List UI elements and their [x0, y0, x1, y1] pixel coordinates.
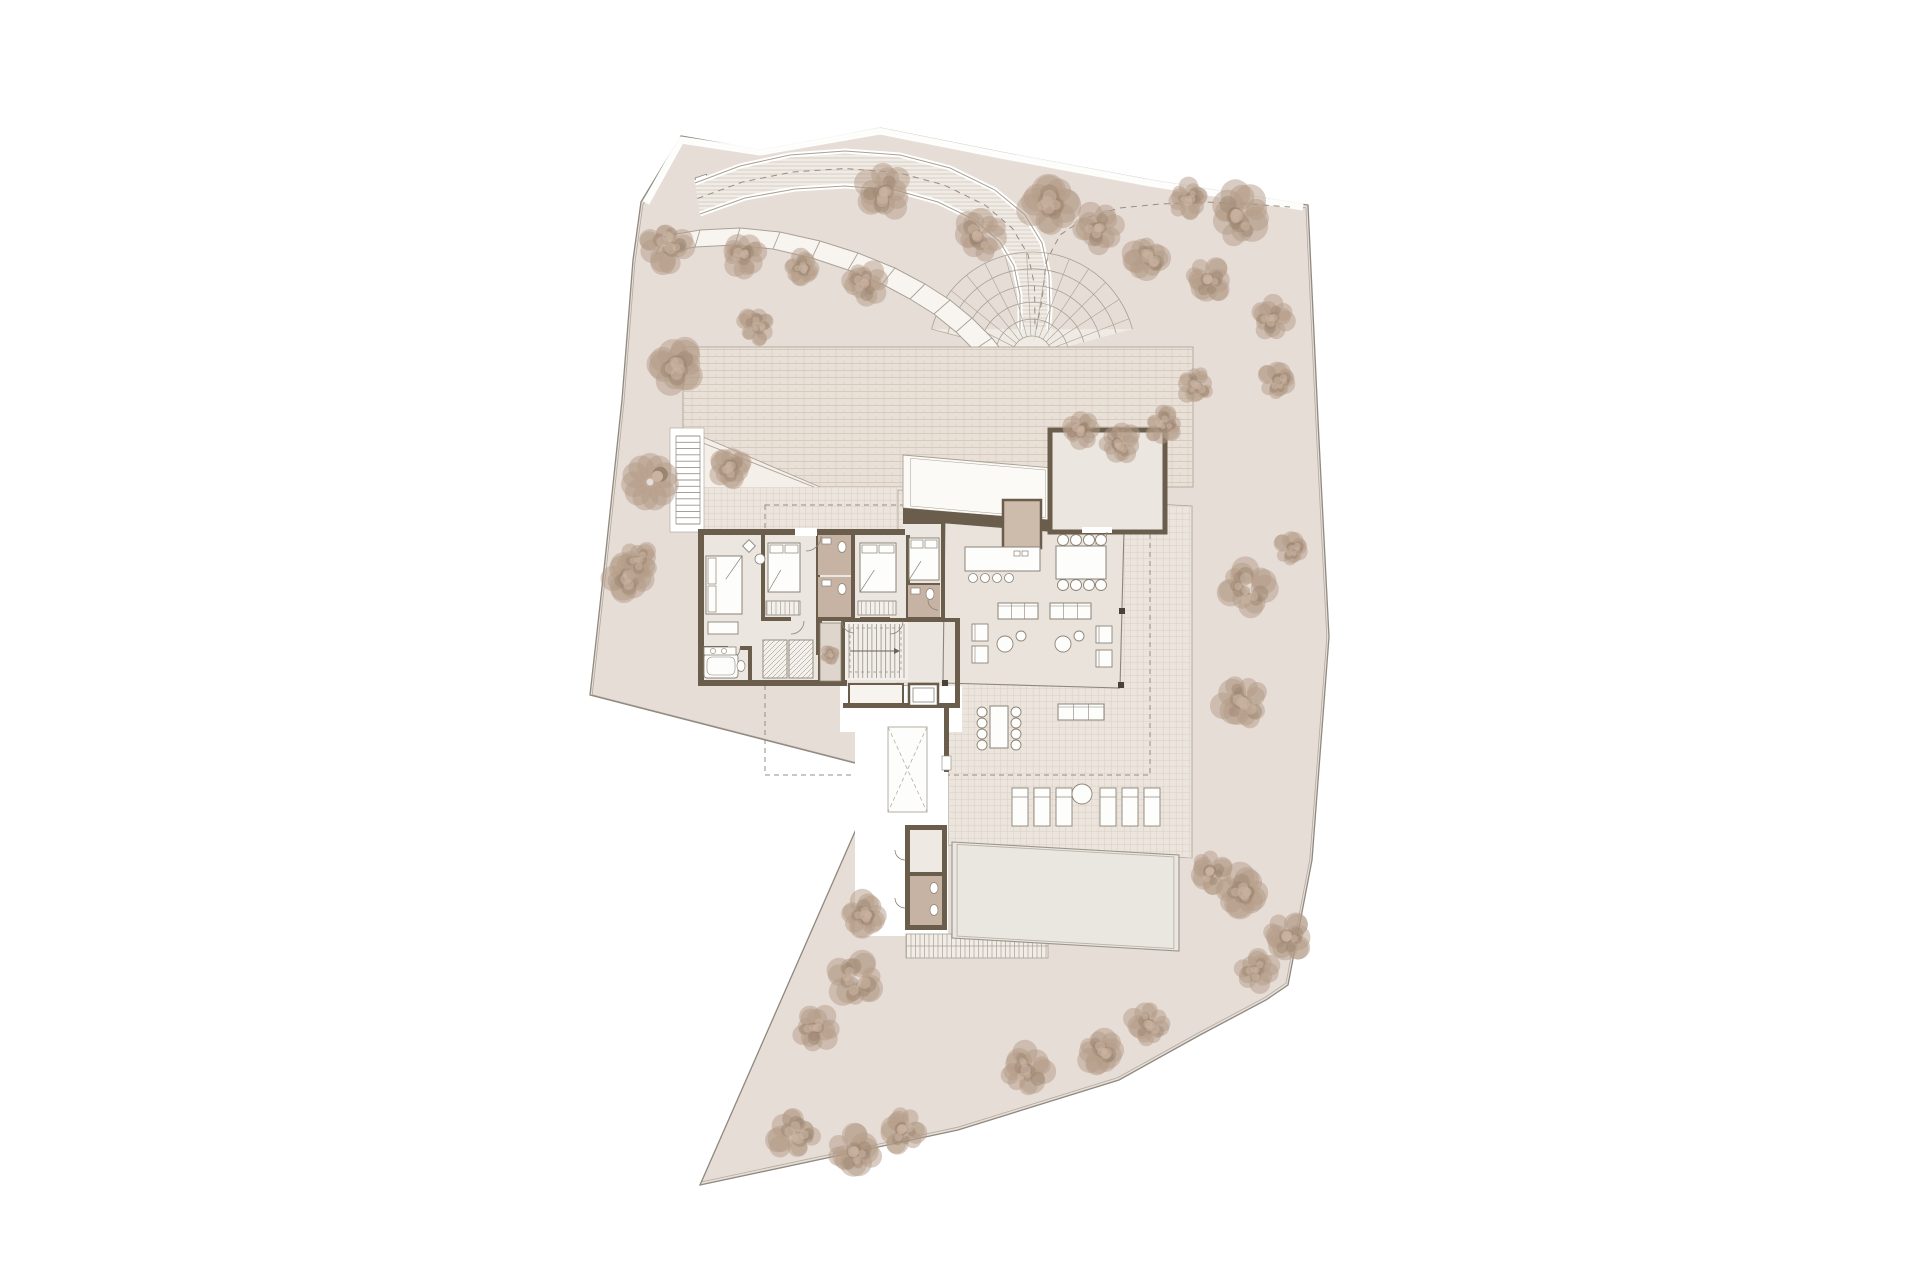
sofa	[1058, 704, 1104, 720]
outdoor-chair	[1011, 740, 1021, 750]
paved-strip-pattern	[700, 487, 903, 532]
toilet	[838, 584, 846, 595]
sofa	[1050, 603, 1091, 619]
column	[1119, 608, 1125, 614]
dining-chair	[1096, 535, 1107, 546]
fixture	[930, 883, 938, 894]
outdoor-chair	[1011, 718, 1021, 728]
sun-lounger	[1122, 788, 1138, 826]
sun-lounger	[1100, 788, 1116, 826]
pool-table	[1072, 784, 1092, 804]
wardrobe-ticks	[858, 601, 896, 615]
wall	[841, 621, 845, 683]
armchair	[1096, 626, 1112, 643]
outdoor-chair	[977, 707, 987, 717]
sun-lounger	[1144, 788, 1160, 826]
wall	[748, 646, 752, 684]
fixture	[930, 905, 938, 916]
wall	[906, 617, 941, 621]
outdoor-chair	[1011, 707, 1021, 717]
dining-chair	[1071, 580, 1082, 591]
vanity	[704, 647, 736, 655]
bed	[860, 543, 896, 592]
pool	[952, 842, 1179, 951]
pool-shower	[910, 830, 942, 872]
pool-wc	[910, 876, 942, 925]
sofa	[998, 603, 1038, 619]
wardrobe-ticks	[766, 601, 800, 615]
toilet	[838, 542, 846, 553]
bed	[706, 556, 742, 614]
sun-lounger	[1056, 788, 1072, 826]
garage-door-gap	[1082, 527, 1112, 533]
wall	[860, 617, 890, 621]
storage-room	[849, 684, 903, 704]
coffee-table	[1055, 636, 1071, 652]
terrace-door	[942, 756, 951, 770]
armchair	[972, 624, 988, 641]
bed	[909, 538, 939, 580]
dining-table	[1056, 546, 1106, 579]
dining-chair	[1096, 580, 1107, 591]
outdoor-dining-table	[990, 706, 1008, 748]
wall	[761, 535, 765, 619]
column	[942, 680, 948, 686]
outdoor-chair	[977, 740, 987, 750]
bar-stool	[1005, 574, 1014, 583]
armchair	[972, 646, 988, 663]
sun-lounger	[1012, 788, 1028, 826]
closet-hatch	[763, 640, 787, 678]
desk	[708, 622, 738, 634]
armchair	[1096, 650, 1112, 667]
wall	[761, 617, 791, 621]
bed	[768, 543, 800, 592]
kitchen-island	[965, 547, 1040, 571]
bar-stool	[981, 574, 990, 583]
toilet	[926, 589, 934, 600]
dining-chair	[1084, 535, 1095, 546]
coffee-table	[1016, 631, 1026, 641]
closet-hatch	[789, 640, 813, 678]
pantry	[1003, 500, 1041, 548]
wall	[941, 521, 945, 620]
site-plan-page	[0, 0, 1920, 1280]
wall	[955, 618, 960, 708]
wall	[816, 617, 854, 621]
wall	[903, 520, 945, 524]
dining-chair	[1071, 535, 1082, 546]
dining-chair	[1058, 580, 1069, 591]
sink	[822, 580, 831, 586]
villa-site-plan-drawing	[0, 0, 1920, 1280]
dining-chair	[1084, 580, 1095, 591]
entry-door-gap	[795, 528, 817, 536]
sun-lounger	[1034, 788, 1050, 826]
sink	[822, 538, 831, 544]
toilet	[737, 661, 745, 672]
outdoor-chair	[977, 729, 987, 739]
side-table	[755, 554, 765, 564]
bar-stool	[969, 574, 978, 583]
outdoor-chair	[1011, 729, 1021, 739]
sink	[911, 588, 920, 594]
dining-chair	[1058, 535, 1069, 546]
bar-stool	[993, 574, 1002, 583]
wall	[698, 529, 704, 686]
column	[1118, 682, 1124, 688]
wall	[851, 535, 855, 619]
tree	[854, 163, 910, 220]
outdoor-chair	[977, 718, 987, 728]
coffee-table	[997, 636, 1013, 652]
coffee-table	[1074, 631, 1084, 641]
